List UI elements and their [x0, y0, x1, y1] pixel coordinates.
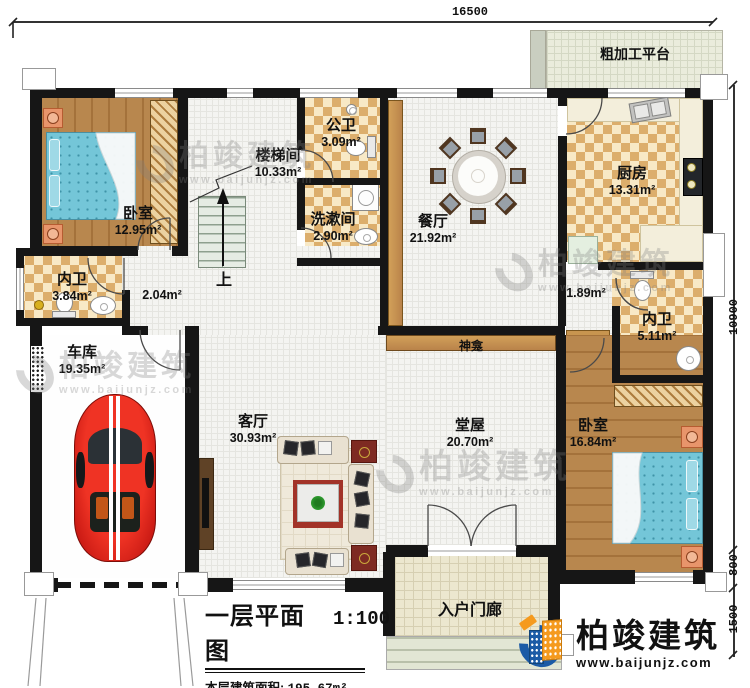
tv: [202, 478, 209, 528]
brand-name: 柏竣建筑: [576, 619, 720, 652]
floor-area-line: 本层建筑面积: 195.67m²: [205, 677, 390, 688]
dim-right-main: 10900: [727, 289, 741, 345]
dim-right-bottom: 1500: [727, 599, 741, 639]
platform-edge: [530, 30, 546, 90]
room-label-public-bath: 公卫 3.09m²: [281, 118, 401, 149]
stairs: [198, 196, 246, 268]
pillow: [686, 498, 698, 530]
sink-ensuite2: [676, 346, 701, 371]
dim-line-top: [13, 21, 713, 23]
window-stairwell: [227, 88, 253, 98]
shower-head: [346, 104, 357, 115]
plan-scale: 1:100: [333, 608, 390, 630]
pillow: [686, 460, 698, 492]
room-label-platform: 粗加工平台: [560, 44, 710, 64]
toilet-tank: [630, 271, 654, 279]
column: [705, 572, 727, 592]
nightstand: [43, 224, 63, 244]
column: [22, 68, 56, 90]
room-label-ensuite2: 内卫 5.11m²: [597, 312, 717, 343]
window-dining-1: [397, 88, 457, 98]
garage-door: [56, 582, 180, 588]
room-label-ensuite1: 内卫 3.84m²: [12, 272, 132, 303]
pillow: [49, 175, 60, 207]
brand-website: www.baijunjz.com: [576, 656, 720, 669]
column: [178, 572, 208, 596]
window-dining-2: [493, 88, 547, 98]
room-label-bedroom1: 卧室 12.95m²: [78, 206, 198, 237]
kitchen-counter-corner: [640, 225, 703, 262]
window-living: [233, 580, 345, 590]
floor-plan: 16500 10900 800 1500 粗加工平台: [0, 0, 750, 688]
nightstand: [681, 546, 703, 568]
pillow: [49, 139, 60, 171]
dining-chair: [430, 168, 446, 184]
refrigerator: [568, 236, 598, 264]
bedroom2-closet: [614, 385, 703, 407]
brand-logo: 柏竣建筑 www.baijunjz.com: [518, 616, 720, 672]
window-bedroom2: [635, 572, 693, 582]
nightstand: [43, 108, 63, 128]
washing-machine: [352, 184, 379, 211]
room-label-hall: 堂屋 20.70m²: [410, 418, 530, 449]
toilet-tank: [52, 311, 76, 318]
area-label-hallway: 1.89m²: [554, 286, 618, 300]
window-bedroom1: [115, 88, 173, 98]
dining-chair: [510, 168, 526, 184]
stairs-up-label: 上: [216, 266, 232, 290]
brand-logo-icon: [518, 616, 568, 672]
end-table: [351, 440, 377, 463]
area-label-corridor: 2.04m²: [130, 288, 194, 302]
room-label-bedroom2: 卧室 16.84m²: [533, 418, 653, 449]
dining-chair: [470, 128, 486, 144]
nightstand: [681, 426, 703, 448]
room-label-dining: 餐厅 21.92m²: [373, 214, 493, 245]
kitchen-bay-window: [703, 233, 725, 297]
window-public-bath: [300, 88, 358, 98]
dim-right-mid: 800: [727, 545, 741, 585]
end-table: [351, 545, 377, 571]
dim-top-label: 16500: [425, 5, 515, 19]
room-label-kitchen: 厨房 13.31m²: [572, 166, 692, 197]
plant: [311, 496, 325, 510]
plan-title: 一层平面图: [205, 596, 324, 666]
room-label-garage: 车库 19.35m²: [22, 345, 142, 376]
room-label-shrine: 神龛: [386, 337, 556, 354]
toilet-ensuite2: [634, 280, 651, 301]
room-label-living: 客厅 30.93m²: [193, 414, 313, 445]
column: [24, 572, 54, 596]
column: [700, 74, 728, 100]
window-kitchen: [608, 88, 685, 98]
room-label-stairwell: 楼梯间 10.33m²: [218, 148, 338, 179]
title-block: 一层平面图 1:100 本层建筑面积: 195.67m² 本栋建筑面积: 369…: [205, 596, 390, 688]
